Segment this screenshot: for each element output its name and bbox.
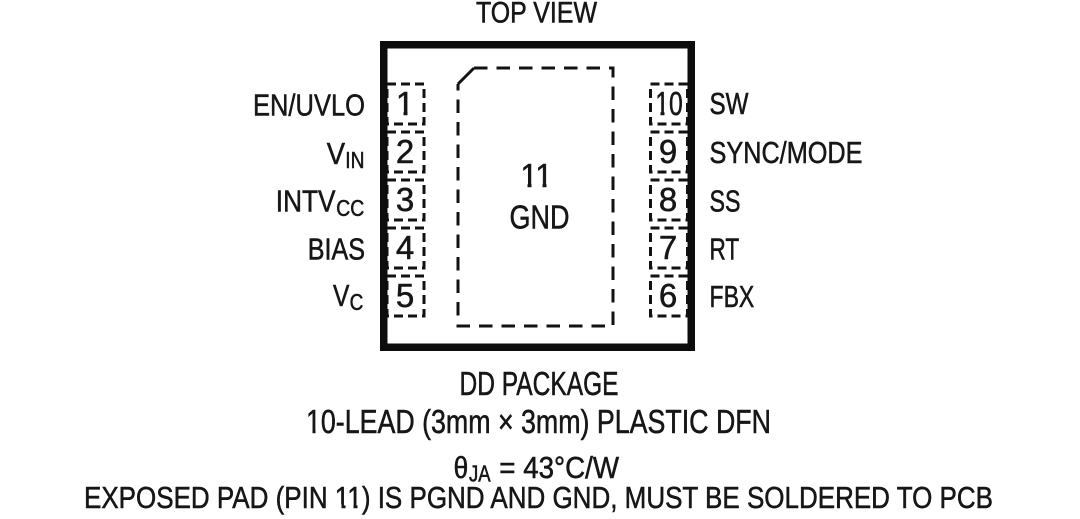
svg-text:C: C [350,289,364,315]
svg-text:GND: GND [510,199,570,236]
svg-text:INTV: INTV [276,184,336,219]
svg-text:SS: SS [710,184,741,219]
svg-text:CC: CC [336,195,364,221]
svg-text:6: 6 [659,277,677,314]
svg-text:2: 2 [396,133,414,170]
svg-text:V: V [333,278,350,313]
svg-text:SYNC/MODE: SYNC/MODE [710,135,863,170]
svg-text:EN/UVLO: EN/UVLO [253,88,365,123]
svg-text:3: 3 [396,181,414,218]
svg-text:DD PACKAGE: DD PACKAGE [460,365,619,402]
svg-text:BIAS: BIAS [308,232,365,267]
svg-text:TOP VIEW: TOP VIEW [476,0,598,30]
svg-text:IN: IN [345,147,364,173]
svg-text:9: 9 [659,133,677,170]
svg-text:8: 8 [659,181,677,218]
svg-text:1: 1 [396,85,414,122]
svg-text:10: 10 [655,85,683,122]
svg-text:V: V [327,136,346,171]
svg-text:10-LEAD (3mm × 3mm) PLASTIC DF: 10-LEAD (3mm × 3mm) PLASTIC DFN [306,403,771,440]
svg-text:11: 11 [521,157,553,194]
svg-text:RT: RT [710,232,740,267]
svg-text:7: 7 [659,229,677,266]
svg-text:EXPOSED PAD (PIN 11) IS PGND A: EXPOSED PAD (PIN 11) IS PGND AND GND, MU… [84,480,993,515]
svg-text:FBX: FBX [710,279,755,314]
svg-text:SW: SW [710,86,750,121]
svg-text:4: 4 [396,229,414,266]
svg-text:5: 5 [396,277,414,314]
